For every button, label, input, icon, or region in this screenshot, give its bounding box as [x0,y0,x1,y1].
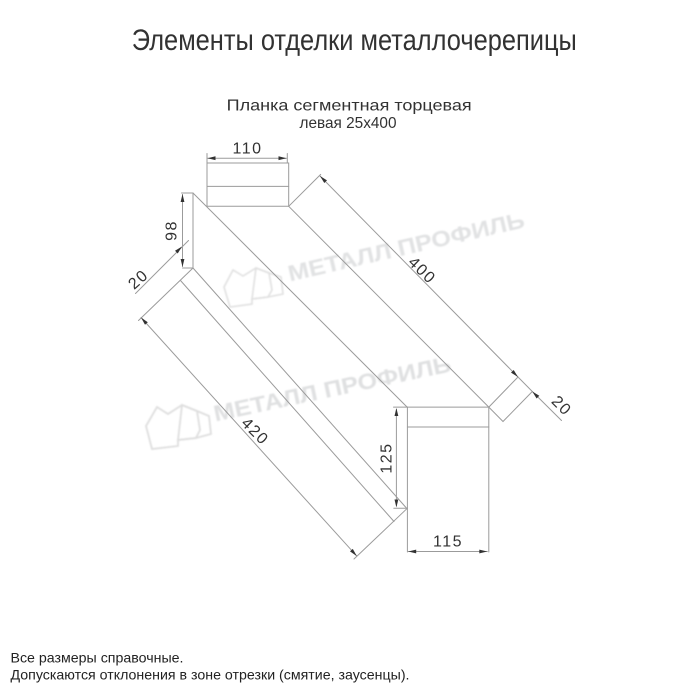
svg-text:левая 25х400: левая 25х400 [300,115,397,132]
svg-text:Все размеры справочные.: Все размеры справочные. [11,650,184,666]
svg-text:125: 125 [379,442,396,473]
svg-text:110: 110 [232,141,262,158]
svg-text:Планка сегментная торцевая: Планка сегментная торцевая [227,98,472,115]
svg-text:98: 98 [164,220,181,241]
svg-text:Допускаются отклонения в зоне: Допускаются отклонения в зоне отрезки (с… [11,667,410,683]
svg-text:115: 115 [433,534,463,551]
svg-text:Элементы отделки металлочерепи: Элементы отделки металлочерепицы [132,24,577,57]
